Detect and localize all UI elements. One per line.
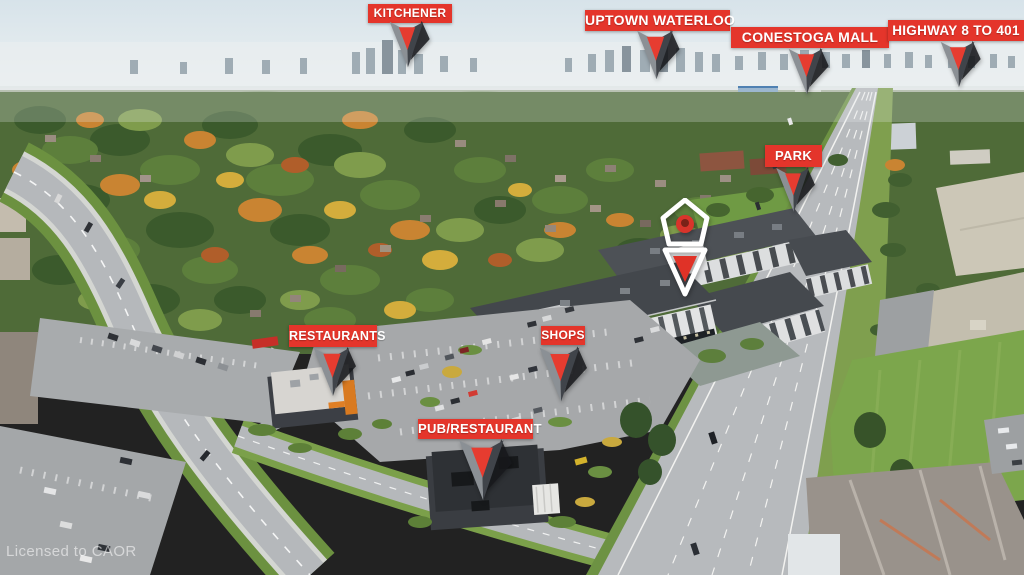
label-highway-8-to-401: HIGHWAY 8 TO 401 [888, 20, 1024, 41]
label-pub-restaurant: PUB/RESTAURANT [418, 419, 533, 439]
watermark: Licensed to CAOR [6, 543, 137, 560]
arrow-down-icon [533, 343, 587, 407]
label-conestoga-mall: CONESTOGA MALL [731, 27, 889, 48]
arrow-down-icon [308, 345, 356, 400]
arrow-down-icon [382, 20, 432, 70]
arrow-down-icon [628, 29, 683, 82]
arrow-down-icon [932, 40, 984, 90]
subject-property-pin-icon [655, 198, 715, 298]
label-uptown-waterloo: UPTOWN WATERLOO [585, 10, 730, 31]
label-restaurants: RESTAURANTS [289, 325, 377, 347]
arrow-down-icon [780, 47, 832, 97]
arrow-down-icon [771, 165, 815, 216]
arrow-down-icon [452, 437, 512, 505]
haze [0, 88, 1024, 122]
label-park: PARK [765, 145, 822, 167]
aerial-scene [0, 0, 1024, 575]
aerial-photo: KITCHENER UPTOWN WATERLOO CONESTOGA MALL… [0, 0, 1024, 575]
sky [0, 0, 1024, 96]
